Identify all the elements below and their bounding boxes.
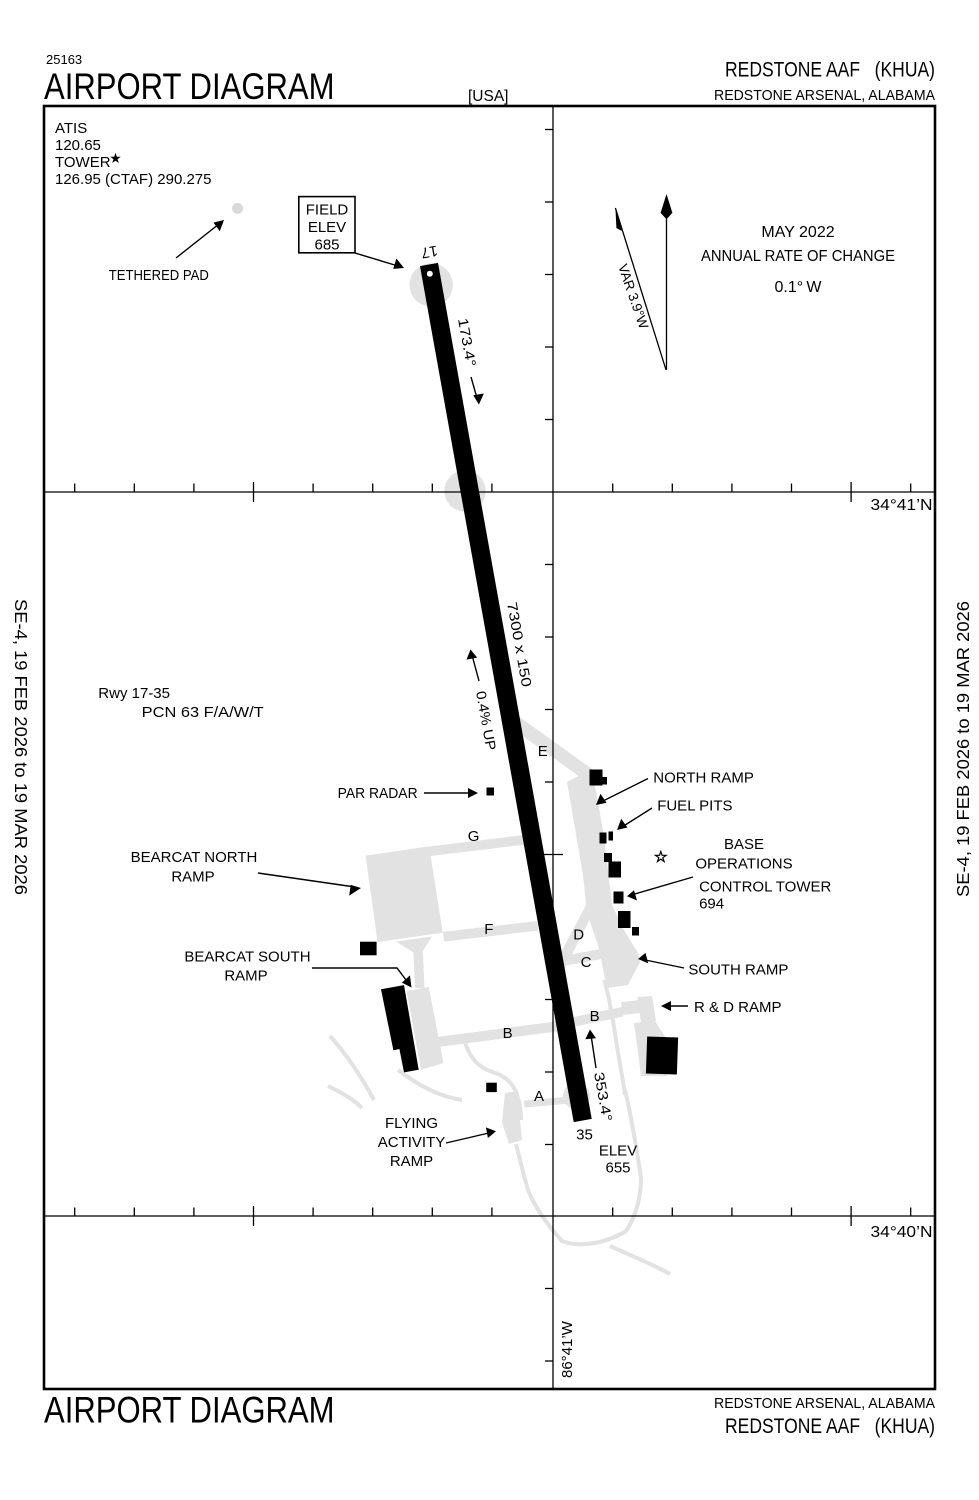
svg-text:86°41’W: 86°41’W	[559, 1320, 576, 1378]
svg-text:TETHERED PAD: TETHERED PAD	[109, 267, 209, 284]
svg-text:OPERATIONS: OPERATIONS	[695, 856, 792, 873]
svg-text:ELEV: ELEV	[308, 219, 346, 236]
svg-text:ELEV: ELEV	[599, 1143, 637, 1160]
svg-text:126.95 (CTAF) 290.275: 126.95 (CTAF) 290.275	[55, 171, 211, 188]
svg-text:PAR RADAR: PAR RADAR	[338, 785, 418, 802]
svg-text:AIRPORT DIAGRAM: AIRPORT DIAGRAM	[44, 1390, 335, 1431]
svg-text:R & D RAMP: R & D RAMP	[694, 999, 782, 1016]
svg-text:SOUTH RAMP: SOUTH RAMP	[688, 962, 788, 979]
svg-text:TOWER: TOWER	[55, 154, 111, 171]
svg-text:SE-4, 19 FEB 2026 to 19 MAR: SE-4, 19 FEB 2026 to 19 MAR 2026	[953, 601, 973, 897]
svg-text:G: G	[468, 828, 480, 845]
svg-text:17: 17	[420, 242, 439, 262]
svg-text:ANNUAL RATE OF CHANGE: ANNUAL RATE OF CHANGE	[701, 248, 895, 265]
svg-text:D: D	[573, 927, 584, 944]
svg-text:35: 35	[576, 1127, 593, 1144]
svg-text:REDSTONE ARSENAL, ALABAMA: REDSTONE ARSENAL, ALABAMA	[714, 88, 935, 104]
svg-text:NORTH RAMP: NORTH RAMP	[653, 770, 754, 787]
svg-text:[USA]: [USA]	[468, 88, 508, 105]
svg-text:25163: 25163	[46, 52, 82, 67]
svg-text:REDSTONE AAF (KHUA): REDSTONE AAF (KHUA)	[725, 59, 935, 82]
svg-text:34°40’N: 34°40’N	[871, 1224, 933, 1241]
svg-text:CONTROL TOWER: CONTROL TOWER	[699, 879, 831, 896]
svg-text:Rwy 17-35: Rwy 17-35	[98, 685, 170, 702]
svg-text:BEARCAT SOUTH: BEARCAT SOUTH	[184, 949, 310, 966]
svg-text:REDSTONE AAF (KHUA): REDSTONE AAF (KHUA)	[725, 1415, 935, 1438]
svg-text:BEARCAT NORTH: BEARCAT NORTH	[131, 849, 258, 866]
svg-text:B: B	[590, 1008, 600, 1025]
svg-text:FUEL PITS: FUEL PITS	[657, 798, 732, 815]
svg-text:F: F	[484, 921, 493, 938]
svg-text:E: E	[538, 743, 548, 760]
svg-text:ATIS: ATIS	[55, 120, 87, 137]
svg-text:RAMP: RAMP	[224, 968, 267, 985]
svg-text:PCN 63 F/A/W/T: PCN 63 F/A/W/T	[142, 704, 264, 721]
svg-text:0.1° W: 0.1° W	[775, 279, 823, 296]
svg-text:685: 685	[314, 237, 339, 254]
svg-text:AIRPORT DIAGRAM: AIRPORT DIAGRAM	[44, 66, 335, 107]
svg-text:ACTIVITY: ACTIVITY	[378, 1134, 446, 1151]
svg-text:SE-4, 19 FEB 2026 to 19 MAR: SE-4, 19 FEB 2026 to 19 MAR 2026	[11, 599, 31, 895]
svg-text:C: C	[581, 954, 592, 971]
svg-text:FIELD: FIELD	[306, 202, 349, 219]
svg-text:RAMP: RAMP	[390, 1153, 433, 1170]
svg-text:B: B	[503, 1025, 513, 1042]
svg-text:A: A	[534, 1088, 544, 1105]
svg-text:RAMP: RAMP	[171, 869, 214, 886]
svg-text:120.65: 120.65	[55, 137, 101, 154]
svg-text:MAY 2022: MAY 2022	[761, 224, 834, 241]
svg-text:REDSTONE ARSENAL, ALABAMA: REDSTONE ARSENAL, ALABAMA	[714, 1396, 935, 1412]
svg-text:BASE: BASE	[724, 836, 764, 853]
svg-text:655: 655	[605, 1160, 630, 1177]
svg-text:34°41’N: 34°41’N	[871, 497, 933, 514]
svg-text:694: 694	[699, 896, 724, 913]
svg-text:FLYING: FLYING	[385, 1115, 438, 1132]
